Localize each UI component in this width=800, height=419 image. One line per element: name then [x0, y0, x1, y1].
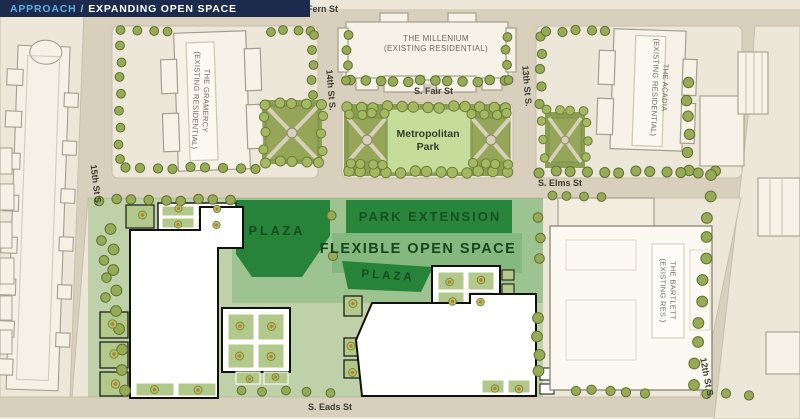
tree-icon	[344, 61, 353, 70]
tree-icon	[693, 318, 704, 329]
tree-icon	[177, 207, 180, 210]
header-separator: /	[81, 3, 85, 15]
tree-icon	[534, 168, 544, 178]
tree-icon	[302, 157, 312, 167]
tree-icon	[676, 168, 686, 178]
tree-icon	[582, 118, 590, 126]
tree-icon	[120, 385, 131, 396]
tree-icon	[112, 352, 116, 356]
tree-icon	[97, 236, 107, 246]
tree-icon	[135, 163, 144, 172]
tree-icon	[121, 163, 130, 172]
tree-icon	[116, 123, 125, 132]
tree-icon	[533, 213, 543, 223]
tree-icon	[318, 111, 327, 120]
tree-icon	[102, 273, 112, 283]
tree-icon	[153, 388, 157, 392]
tree-icon	[208, 195, 218, 205]
tree-icon	[503, 160, 512, 169]
tree-icon	[481, 159, 490, 168]
tree-icon	[318, 146, 327, 155]
tree-icon	[449, 101, 459, 111]
tree-icon	[566, 106, 575, 115]
tree-icon	[408, 102, 418, 112]
tree-icon	[468, 158, 477, 167]
millenium-subtitle: (EXISTING RESIDENTIAL)	[361, 44, 511, 54]
tree-icon	[517, 387, 520, 390]
header-approach-label: APPROACH	[10, 3, 77, 15]
tree-icon	[248, 377, 251, 380]
tree-icon	[562, 192, 571, 201]
tree-icon	[631, 166, 641, 176]
millenium-name: THE MILLENIUM	[361, 34, 511, 44]
tree-icon	[537, 117, 545, 125]
tree-icon	[705, 191, 716, 202]
tree-icon	[267, 28, 276, 37]
tree-icon	[236, 164, 245, 173]
acadia-building-wing	[700, 96, 744, 166]
tree-icon	[535, 64, 544, 73]
tree-icon	[442, 76, 452, 86]
tree-icon	[551, 166, 561, 176]
tree-icon	[115, 106, 124, 115]
metropolitan-line2: Park	[376, 141, 480, 154]
tree-icon	[218, 163, 227, 172]
tree-icon	[693, 168, 703, 178]
tree-icon	[582, 153, 590, 161]
tree-icon	[645, 167, 655, 177]
tree-icon	[380, 109, 389, 118]
tree-icon	[111, 285, 122, 296]
building-label-bartlett: THE BARTLETT (EXISTING RES.)	[659, 227, 678, 355]
tree-icon	[571, 25, 580, 34]
tree-icon	[294, 26, 303, 35]
tree-icon	[597, 193, 606, 202]
tree-icon	[614, 168, 624, 178]
tree-icon	[403, 77, 413, 87]
tree-icon	[436, 167, 446, 177]
tree-icon	[260, 100, 270, 110]
tree-icon	[376, 76, 386, 86]
tree-icon	[226, 195, 236, 205]
tree-icon	[126, 195, 136, 205]
tree-icon	[485, 75, 495, 85]
tree-icon	[162, 196, 172, 206]
header-title: EXPANDING OPEN SPACE	[88, 3, 237, 15]
tree-icon	[308, 46, 317, 55]
tree-icon	[369, 160, 378, 169]
tree-icon	[279, 26, 288, 35]
tree-icon	[473, 77, 483, 87]
tree-icon	[144, 195, 154, 205]
tree-icon	[683, 77, 693, 87]
tree-icon	[99, 256, 109, 266]
tree-icon	[744, 391, 753, 400]
tree-icon	[117, 58, 126, 67]
tree-icon	[721, 389, 730, 398]
bartlett-subtitle: (EXISTING RES.)	[659, 227, 669, 355]
tree-icon	[108, 244, 119, 255]
tree-icon	[683, 111, 693, 121]
metropolitan-line1: Metropolitan	[376, 128, 480, 141]
tree-icon	[238, 354, 242, 358]
tree-icon	[689, 380, 700, 391]
tree-icon	[307, 76, 316, 85]
tree-icon	[150, 27, 159, 36]
tree-icon	[111, 322, 115, 326]
bartlett-building	[550, 198, 712, 390]
tree-icon	[114, 140, 123, 149]
plaza-north-label: PLAZA	[235, 224, 319, 238]
street-label-fair: S. Fair St	[414, 86, 453, 96]
tree-icon	[451, 300, 454, 303]
tree-icon	[116, 365, 127, 376]
tree-icon	[410, 166, 420, 176]
tree-icon	[504, 76, 513, 85]
tree-icon	[534, 350, 545, 361]
tree-icon	[176, 223, 179, 226]
tree-icon	[565, 167, 575, 177]
tree-icon	[662, 167, 672, 177]
tree-icon	[356, 159, 365, 168]
tree-icon	[351, 302, 355, 306]
tree-icon	[361, 76, 371, 86]
tree-icon	[621, 388, 630, 397]
tree-icon	[309, 91, 318, 100]
tree-icon	[302, 99, 312, 109]
tree-icon	[480, 110, 489, 119]
tree-icon	[697, 275, 708, 286]
tree-icon	[176, 196, 186, 206]
tree-icon	[274, 375, 277, 378]
tree-icon	[421, 166, 431, 176]
building-label-millenium: THE MILLENIUM (EXISTING RESIDENTIAL)	[361, 34, 511, 53]
tree-icon	[493, 387, 496, 390]
tree-icon	[358, 110, 367, 119]
tree-icon	[194, 194, 204, 204]
tree-icon	[317, 100, 327, 110]
tree-icon	[101, 293, 111, 303]
tree-icon	[503, 60, 512, 69]
tree-icon	[196, 388, 200, 392]
tree-icon	[556, 106, 565, 115]
tree-icon	[342, 76, 351, 85]
tree-icon	[261, 158, 271, 168]
tree-icon	[600, 26, 609, 35]
tree-icon	[493, 110, 502, 119]
tree-icon	[558, 27, 567, 36]
tree-icon	[259, 112, 268, 121]
tree-icon	[706, 170, 717, 181]
tree-icon	[533, 366, 544, 377]
tree-icon	[537, 82, 546, 91]
tree-icon	[542, 105, 551, 114]
tree-icon	[302, 387, 311, 396]
tree-icon	[684, 129, 694, 139]
tree-icon	[310, 31, 319, 40]
tree-icon	[682, 147, 692, 157]
tree-icon	[345, 110, 354, 119]
tree-icon	[388, 77, 398, 87]
tree-icon	[314, 158, 324, 168]
tree-icon	[580, 192, 589, 201]
tree-icon	[571, 386, 580, 395]
tree-icon	[141, 213, 145, 217]
street-label-elms: S. Elms St	[538, 178, 582, 188]
tree-icon	[681, 95, 691, 105]
tree-icon	[415, 75, 425, 85]
tree-icon	[378, 160, 387, 169]
tree-icon	[316, 129, 325, 138]
tree-icon	[701, 253, 712, 264]
tree-icon	[287, 99, 297, 109]
tree-icon	[309, 61, 318, 70]
tree-icon	[502, 108, 511, 117]
street-label-eads: S. Eads St	[308, 402, 352, 412]
tree-icon	[163, 27, 172, 36]
tree-icon	[115, 72, 124, 81]
tree-icon	[537, 49, 546, 58]
tree-icon	[114, 382, 118, 386]
tree-icon	[395, 168, 405, 178]
tree-icon	[276, 156, 286, 166]
tree-icon	[270, 325, 274, 329]
tree-icon	[434, 103, 444, 113]
tree-icon	[133, 26, 142, 35]
tree-icon	[215, 207, 218, 210]
tree-icon	[111, 306, 122, 317]
acadia-pocket-park	[545, 112, 585, 168]
tree-icon	[112, 194, 122, 204]
tree-icon	[351, 371, 355, 375]
tree-icon	[491, 159, 500, 168]
tree-icon	[448, 280, 451, 283]
tree-icon	[346, 159, 355, 168]
site-plan-canvas: APPROACH / EXPANDING OPEN SPACE S. Fern …	[0, 0, 800, 419]
tree-icon	[116, 155, 125, 164]
tree-icon	[702, 213, 713, 224]
tree-icon	[541, 27, 550, 36]
tree-icon	[587, 26, 596, 35]
tree-icon	[533, 313, 544, 324]
tree-icon	[584, 137, 592, 145]
tree-icon	[349, 344, 353, 348]
tree-icon	[397, 101, 407, 111]
tree-icon	[548, 191, 557, 200]
tree-icon	[479, 300, 482, 303]
park-extension-label: PARK EXTENSION	[336, 209, 524, 224]
tree-icon	[215, 223, 218, 226]
tree-icon	[582, 167, 592, 177]
flexible-open-space-label: FLEXIBLE OPEN SPACE	[296, 241, 540, 257]
tree-icon	[539, 135, 547, 143]
tree-icon	[367, 108, 376, 117]
tree-icon	[287, 157, 297, 167]
tree-icon	[479, 278, 482, 281]
tree-icon	[606, 386, 615, 395]
tree-icon	[258, 387, 267, 396]
slide-header: APPROACH / EXPANDING OPEN SPACE	[0, 0, 310, 17]
tree-icon	[579, 107, 588, 116]
tree-icon	[458, 77, 468, 87]
tree-icon	[462, 168, 472, 178]
tree-icon	[116, 41, 125, 50]
tree-icon	[153, 164, 162, 173]
tree-icon	[261, 127, 270, 136]
tree-icon	[269, 355, 273, 359]
tree-icon	[447, 167, 457, 177]
tree-icon	[640, 389, 649, 398]
tree-icon	[251, 164, 260, 173]
metropolitan-park-label: Metropolitan Park	[376, 128, 480, 154]
tree-icon	[467, 109, 476, 118]
bartlett-name: THE BARTLETT	[668, 227, 678, 355]
tree-icon	[259, 145, 268, 154]
tree-icon	[532, 331, 543, 342]
tree-icon	[282, 386, 291, 395]
tree-icon	[238, 324, 242, 328]
tree-icon	[116, 26, 125, 35]
tree-icon	[701, 232, 712, 243]
tree-icon	[275, 98, 285, 108]
tree-icon	[168, 164, 177, 173]
tree-icon	[327, 211, 336, 220]
tree-icon	[326, 389, 335, 398]
tree-icon	[600, 168, 610, 178]
tree-icon	[342, 46, 351, 55]
tree-icon	[431, 76, 441, 86]
tree-icon	[344, 31, 353, 40]
tree-icon	[423, 102, 433, 112]
tree-icon	[540, 154, 548, 162]
tree-icon	[105, 224, 116, 235]
tree-icon	[117, 89, 126, 98]
tree-icon	[697, 296, 708, 307]
tree-icon	[237, 386, 246, 395]
tree-icon	[587, 385, 596, 394]
gramercy-pocket-plaza	[262, 100, 322, 164]
